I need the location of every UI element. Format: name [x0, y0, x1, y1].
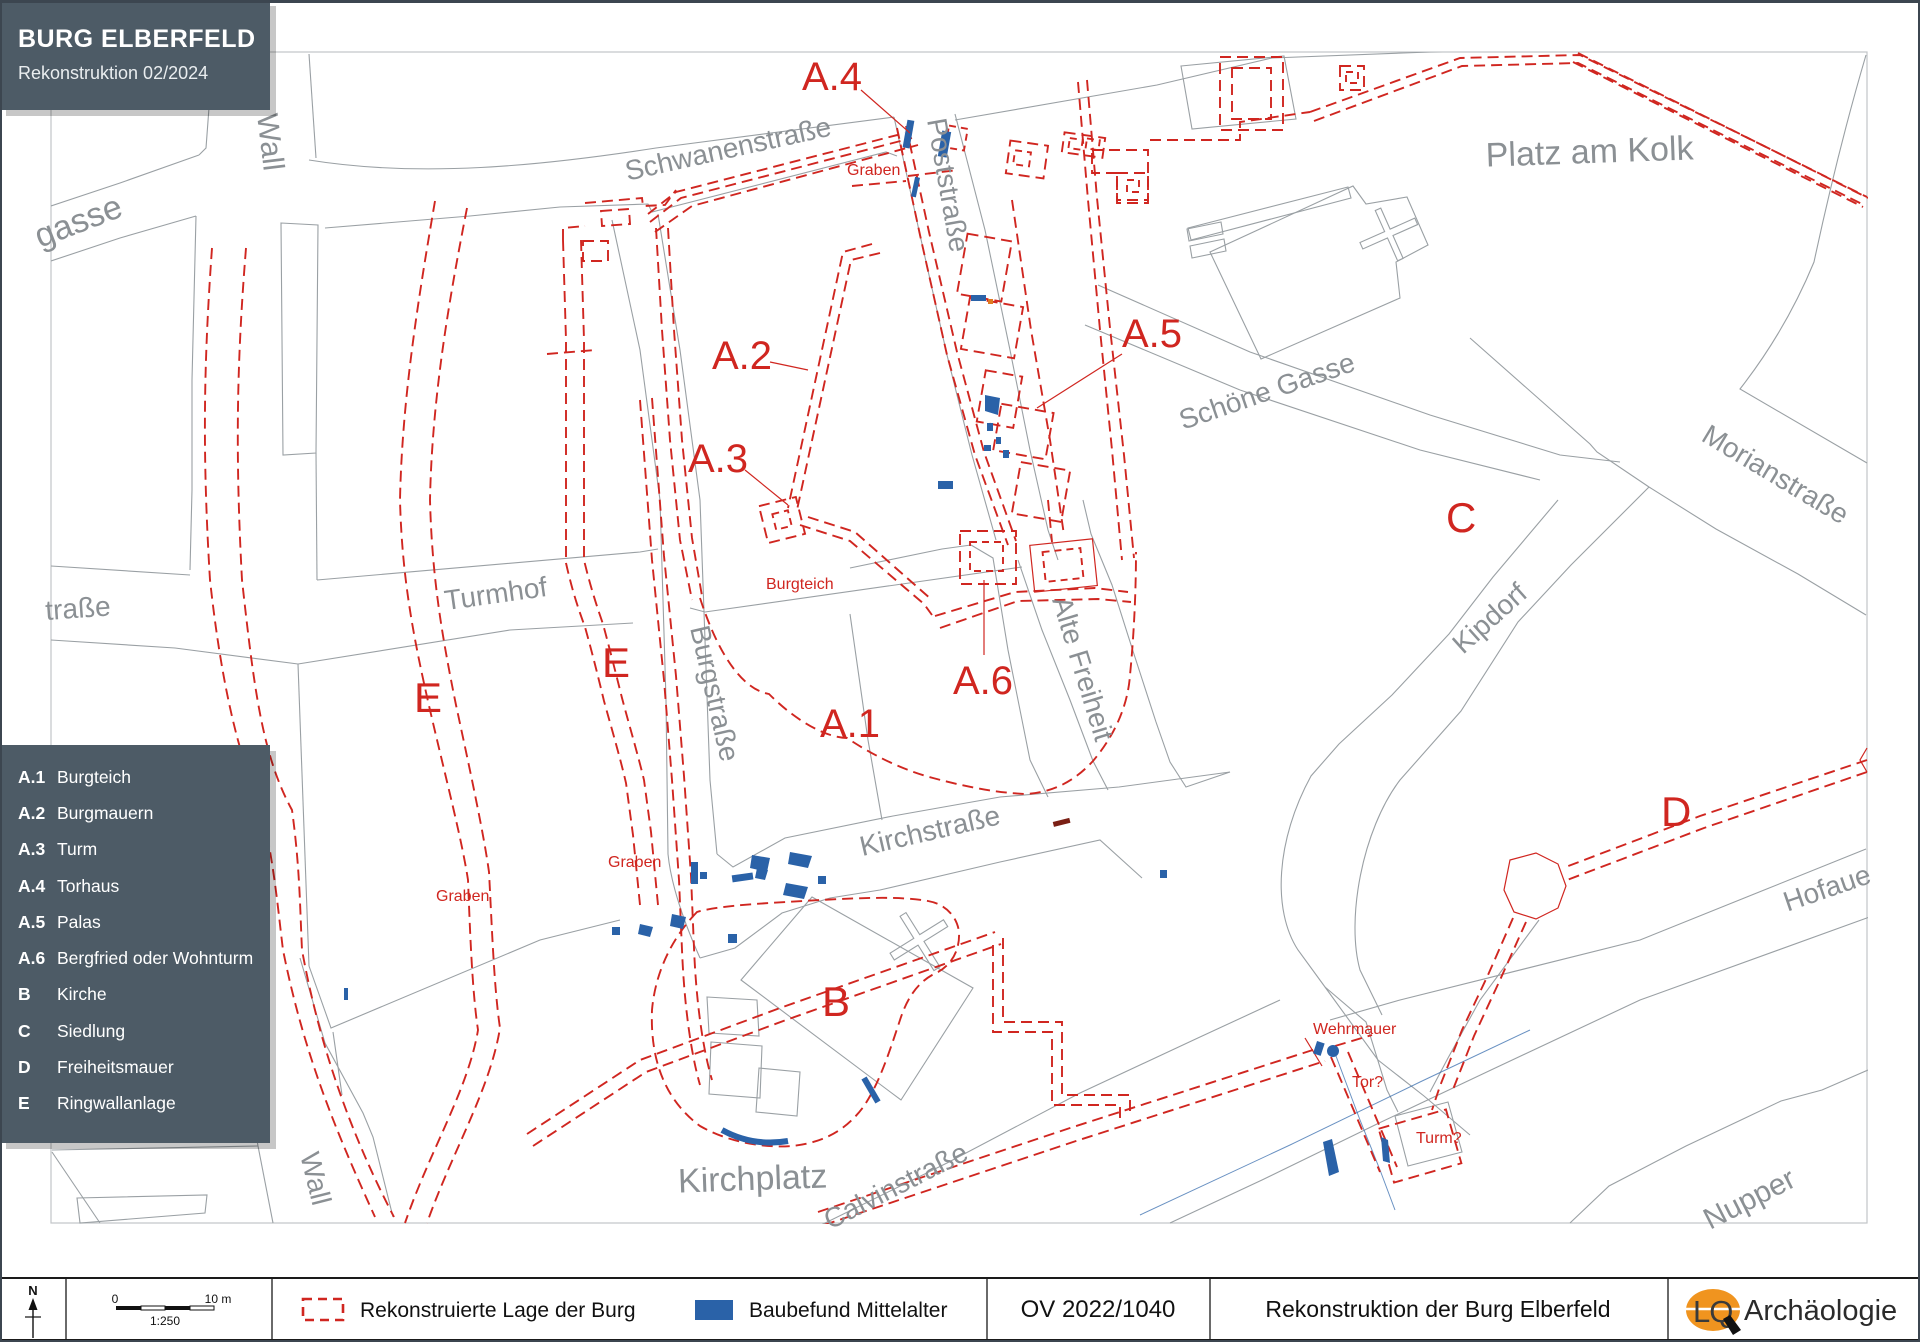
svg-text:Rekonstruierte Lage der Burg: Rekonstruierte Lage der Burg	[360, 1299, 636, 1322]
svg-text:Palas: Palas	[57, 912, 101, 932]
svg-text:0: 0	[112, 1292, 119, 1306]
svg-text:BURG ELBERFELD: BURG ELBERFELD	[18, 25, 256, 53]
svg-text:10 m: 10 m	[205, 1292, 232, 1306]
svg-text:A.4: A.4	[802, 55, 862, 99]
svg-text:Archäologie: Archäologie	[1744, 1295, 1897, 1327]
svg-text:A.6: A.6	[953, 659, 1013, 703]
svg-text:A.1: A.1	[820, 702, 880, 746]
svg-text:Rekonstruktion der Burg Elberf: Rekonstruktion der Burg Elberfeld	[1265, 1296, 1610, 1322]
svg-text:Graben: Graben	[608, 854, 661, 871]
svg-text:Burgteich: Burgteich	[766, 576, 834, 593]
svg-text:Tor?: Tor?	[1352, 1074, 1383, 1091]
svg-text:Burgteich: Burgteich	[57, 767, 131, 787]
svg-text:Siedlung: Siedlung	[57, 1021, 125, 1041]
svg-text:C: C	[1446, 494, 1476, 541]
svg-text:Turm?: Turm?	[1416, 1130, 1462, 1147]
svg-text:D: D	[18, 1057, 31, 1077]
svg-text:Bergfried oder Wohnturm: Bergfried oder Wohnturm	[57, 948, 253, 968]
svg-text:Platz am Kolk: Platz am Kolk	[1485, 129, 1695, 174]
svg-text:A.3: A.3	[688, 437, 748, 481]
svg-text:Graben: Graben	[436, 888, 489, 905]
svg-text:A.4: A.4	[18, 876, 46, 896]
svg-text:Freiheitsmauer: Freiheitsmauer	[57, 1057, 174, 1077]
svg-text:E: E	[414, 674, 442, 721]
svg-text:Graben: Graben	[847, 162, 900, 179]
svg-text:OV 2022/1040: OV 2022/1040	[1021, 1296, 1176, 1323]
svg-text:A.6: A.6	[18, 948, 46, 968]
svg-text:N: N	[28, 1283, 37, 1298]
svg-text:C: C	[18, 1021, 31, 1041]
svg-text:Ringwallanlage: Ringwallanlage	[57, 1093, 176, 1113]
svg-text:Wall: Wall	[250, 112, 290, 173]
svg-text:A.2: A.2	[18, 803, 46, 823]
svg-text:Turm: Turm	[57, 839, 97, 859]
svg-text:B: B	[822, 978, 850, 1025]
svg-text:Burgmauern: Burgmauern	[57, 803, 153, 823]
svg-text:Rekonstruktion 02/2024: Rekonstruktion 02/2024	[18, 63, 208, 83]
svg-text:Kirchplatz: Kirchplatz	[677, 1157, 828, 1200]
svg-text:E: E	[18, 1093, 30, 1113]
svg-text:A.2: A.2	[712, 334, 772, 378]
svg-text:D: D	[1661, 788, 1691, 835]
svg-text:B: B	[18, 984, 31, 1004]
svg-text:1:250: 1:250	[150, 1314, 180, 1328]
svg-text:A.5: A.5	[18, 912, 46, 932]
svg-text:A.1: A.1	[18, 767, 46, 787]
svg-text:traße: traße	[44, 591, 111, 626]
svg-text:A.3: A.3	[18, 839, 46, 859]
svg-text:Wehrmauer: Wehrmauer	[1313, 1021, 1397, 1038]
svg-text:Baubefund Mittelalter: Baubefund Mittelalter	[749, 1299, 947, 1322]
svg-text:Kirche: Kirche	[57, 984, 107, 1004]
svg-text:E: E	[602, 639, 630, 686]
svg-text:Torhaus: Torhaus	[57, 876, 120, 896]
svg-text:A.5: A.5	[1122, 312, 1182, 356]
